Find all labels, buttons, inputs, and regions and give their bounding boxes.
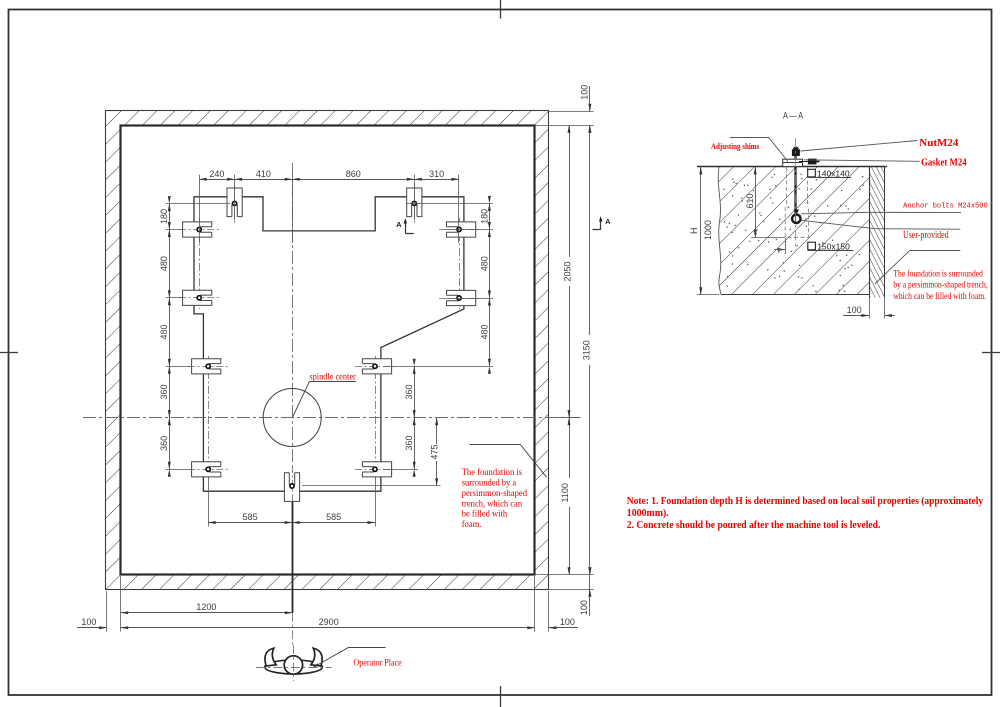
svg-text:persimmon-shaped: persimmon-shaped: [462, 488, 527, 499]
svg-text:860: 860: [346, 169, 361, 179]
svg-text:1100: 1100: [560, 483, 570, 502]
svg-text:Anchor bolts M24x500: Anchor bolts M24x500: [903, 202, 988, 210]
svg-text:240: 240: [209, 169, 224, 179]
svg-text:360: 360: [159, 436, 169, 451]
svg-text:Operator Place: Operator Place: [353, 658, 401, 668]
svg-text:The foundation is: The foundation is: [462, 467, 523, 478]
svg-text:2. Concrete should be poured a: 2. Concrete should be poured after the m…: [627, 519, 881, 531]
svg-text:NutM24: NutM24: [919, 138, 959, 149]
svg-text:180: 180: [479, 209, 489, 224]
svg-text:480: 480: [159, 324, 169, 339]
svg-text:H: H: [689, 227, 699, 234]
svg-text:1000mm).: 1000mm).: [627, 507, 669, 519]
svg-text:360: 360: [404, 384, 414, 399]
svg-text:3150: 3150: [582, 340, 592, 360]
svg-text:1200: 1200: [196, 602, 216, 612]
svg-text:Gasket M24: Gasket M24: [921, 157, 967, 168]
svg-text:140x140: 140x140: [817, 168, 850, 178]
svg-text:180: 180: [159, 209, 169, 224]
svg-text:150x150: 150x150: [817, 241, 850, 251]
svg-text:310: 310: [429, 169, 444, 179]
svg-text:trench, which can: trench, which can: [462, 498, 523, 509]
svg-text:585: 585: [326, 512, 341, 522]
svg-text:A: A: [605, 217, 611, 226]
svg-text:475: 475: [430, 445, 440, 460]
svg-text:2900: 2900: [319, 617, 339, 627]
svg-text:610: 610: [745, 193, 755, 208]
svg-text:A — A: A — A: [783, 111, 804, 122]
svg-text:which can be filled with foam.: which can be filled with foam.: [893, 291, 986, 302]
svg-text:100: 100: [560, 617, 575, 627]
svg-text:100: 100: [579, 600, 589, 615]
svg-text:100: 100: [81, 617, 96, 627]
svg-text:surrounded by a: surrounded by a: [462, 478, 517, 489]
svg-text:100: 100: [579, 85, 589, 100]
svg-text:410: 410: [256, 169, 271, 179]
svg-text:360: 360: [404, 435, 414, 450]
svg-text:Note: 1. Foundation depth H is: Note: 1. Foundation depth H is determine…: [627, 495, 984, 507]
svg-text:1000: 1000: [703, 220, 713, 240]
svg-text:A: A: [396, 220, 402, 229]
svg-text:360: 360: [159, 384, 169, 399]
svg-text:by a persimmon-shaped trench,: by a persimmon-shaped trench,: [893, 280, 987, 291]
svg-text:The foundation is surrounded: The foundation is surrounded: [893, 268, 983, 279]
svg-text:Adjusting shims: Adjusting shims: [711, 141, 760, 151]
svg-text:foam.: foam.: [462, 519, 482, 530]
svg-text:480: 480: [479, 324, 489, 339]
svg-text:585: 585: [243, 512, 258, 522]
svg-text:spindle center: spindle center: [309, 372, 356, 382]
svg-text:be filled with: be filled with: [462, 509, 508, 520]
svg-text:100: 100: [847, 305, 862, 315]
svg-text:480: 480: [479, 256, 489, 271]
svg-text:2050: 2050: [563, 261, 573, 281]
svg-text:480: 480: [159, 256, 169, 271]
svg-text:User-provided: User-provided: [903, 230, 949, 241]
